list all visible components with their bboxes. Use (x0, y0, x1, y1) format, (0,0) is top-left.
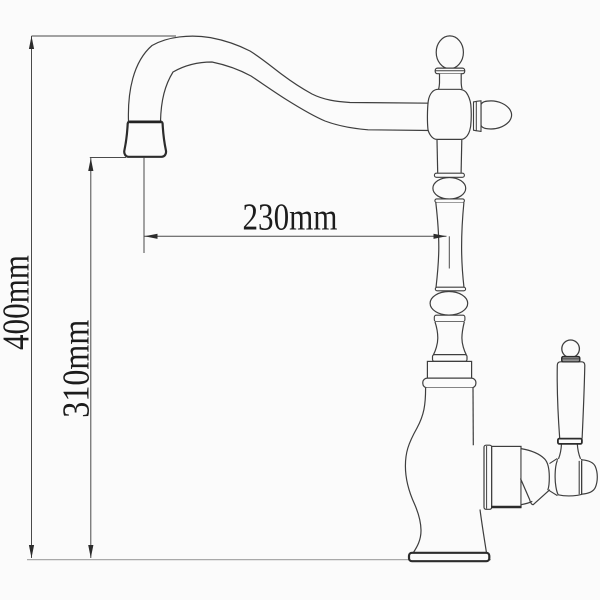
svg-text:230mm: 230mm (243, 197, 338, 239)
svg-text:310mm: 310mm (56, 320, 98, 418)
svg-text:400mm: 400mm (0, 255, 38, 350)
